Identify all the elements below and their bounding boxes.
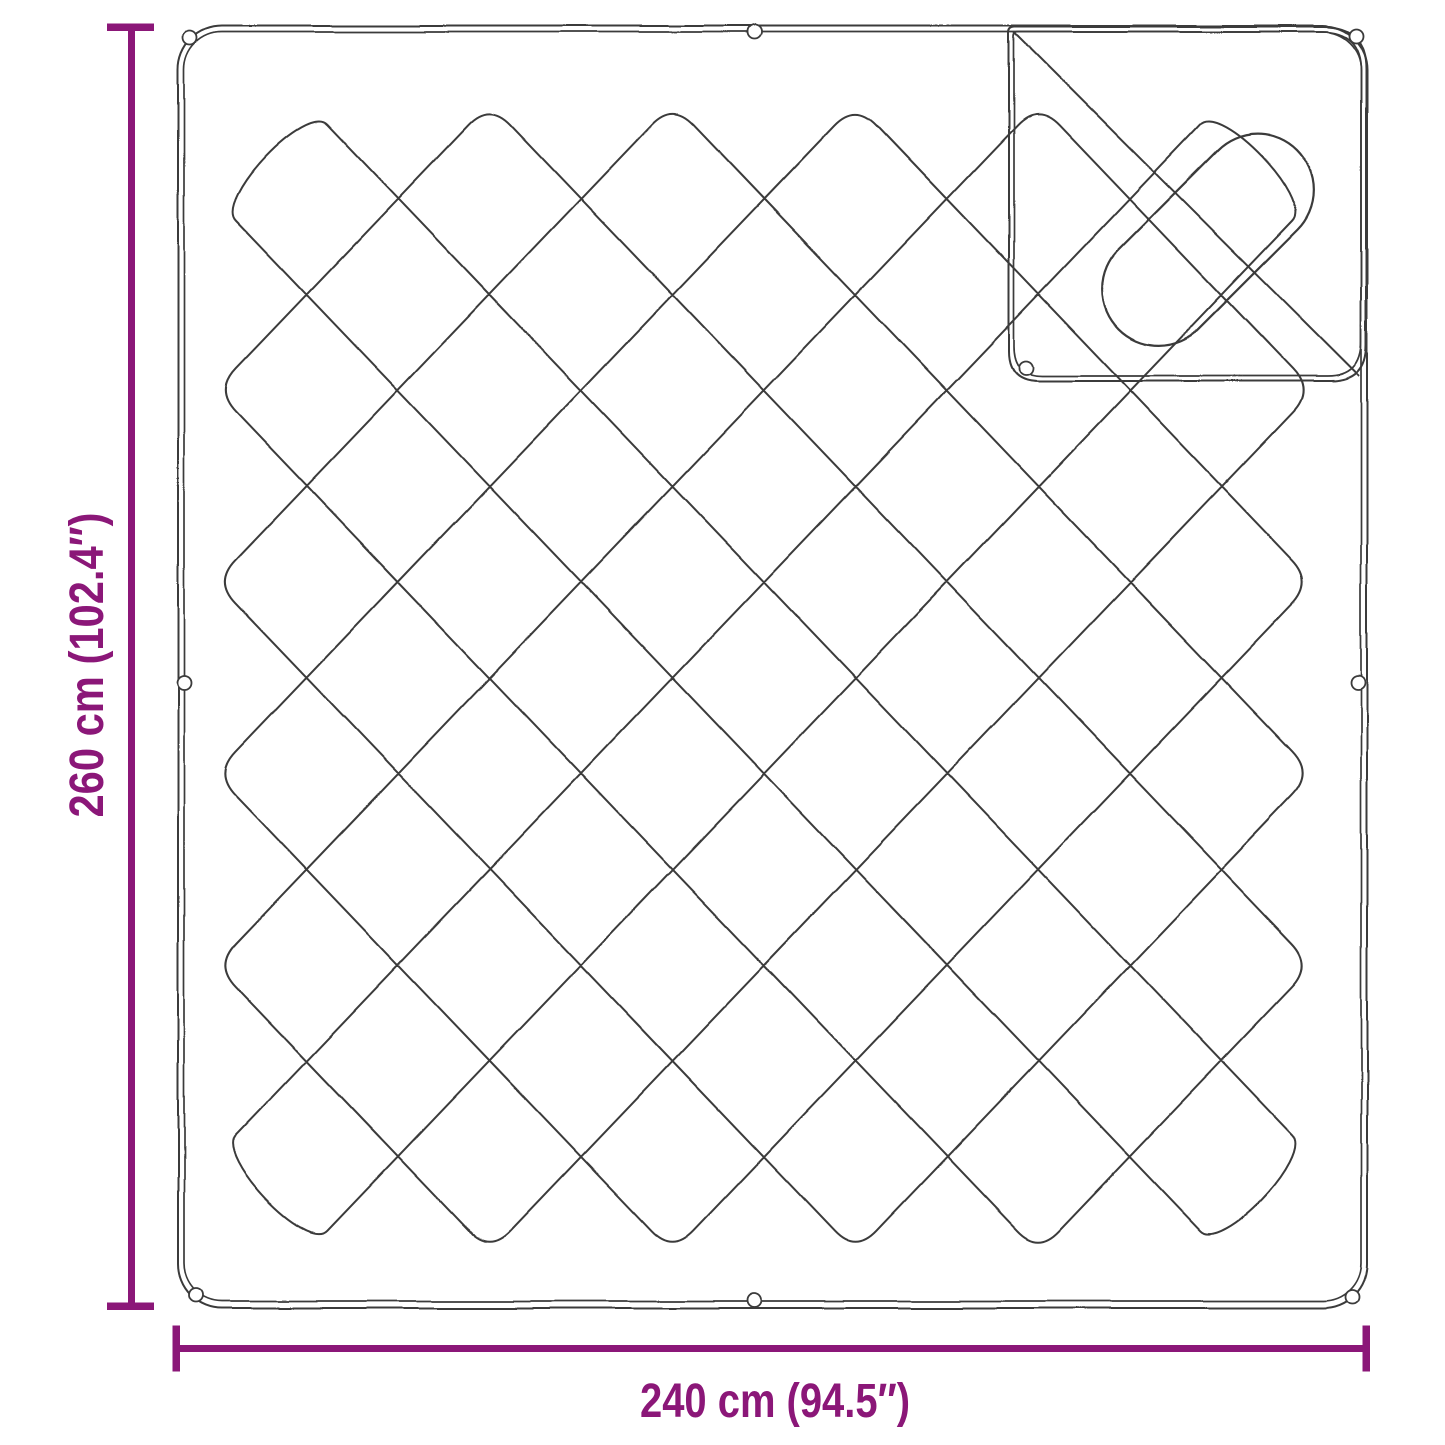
snap-stud-icon (189, 1288, 203, 1302)
quilt-stitching-pattern (225, 114, 1302, 1242)
snap-fasteners (177, 25, 1365, 1307)
snap-stud-icon (183, 31, 197, 45)
width-dimension: 240 cm (94.5″) (173, 1326, 1371, 1429)
diagram-canvas: 260 cm (102.4″) 240 cm (94.5″) (0, 0, 1445, 1445)
snap-stud-icon (177, 676, 191, 690)
blanket-outline-outer (178, 26, 1367, 1308)
snap-stud-icon (1349, 29, 1363, 43)
snap-stud-icon (747, 1293, 761, 1307)
width-dimension-left-cap (173, 1326, 181, 1372)
height-dimension: 260 cm (102.4″) (61, 24, 154, 1311)
height-dimension-top-cap (107, 24, 154, 32)
product-dimension-image: 260 cm (102.4″) 240 cm (94.5″) (0, 0, 1445, 1445)
height-dimension-bottom-cap (107, 1303, 154, 1311)
blanket-outline-inner (184, 32, 1361, 1301)
snap-stud-icon (1351, 676, 1365, 690)
capsule-stitch (1079, 111, 1337, 369)
width-dimension-right-cap (1363, 1326, 1371, 1372)
snap-stud-icon (1019, 361, 1033, 375)
folded-corner-flap (1009, 27, 1366, 381)
height-dimension-label: 260 cm (102.4″) (61, 513, 114, 818)
snap-stud-icon (1345, 1290, 1359, 1304)
quilted-blanket-drawing (177, 25, 1367, 1308)
snap-stud-icon (748, 25, 762, 39)
width-dimension-label: 240 cm (94.5″) (640, 1375, 910, 1428)
